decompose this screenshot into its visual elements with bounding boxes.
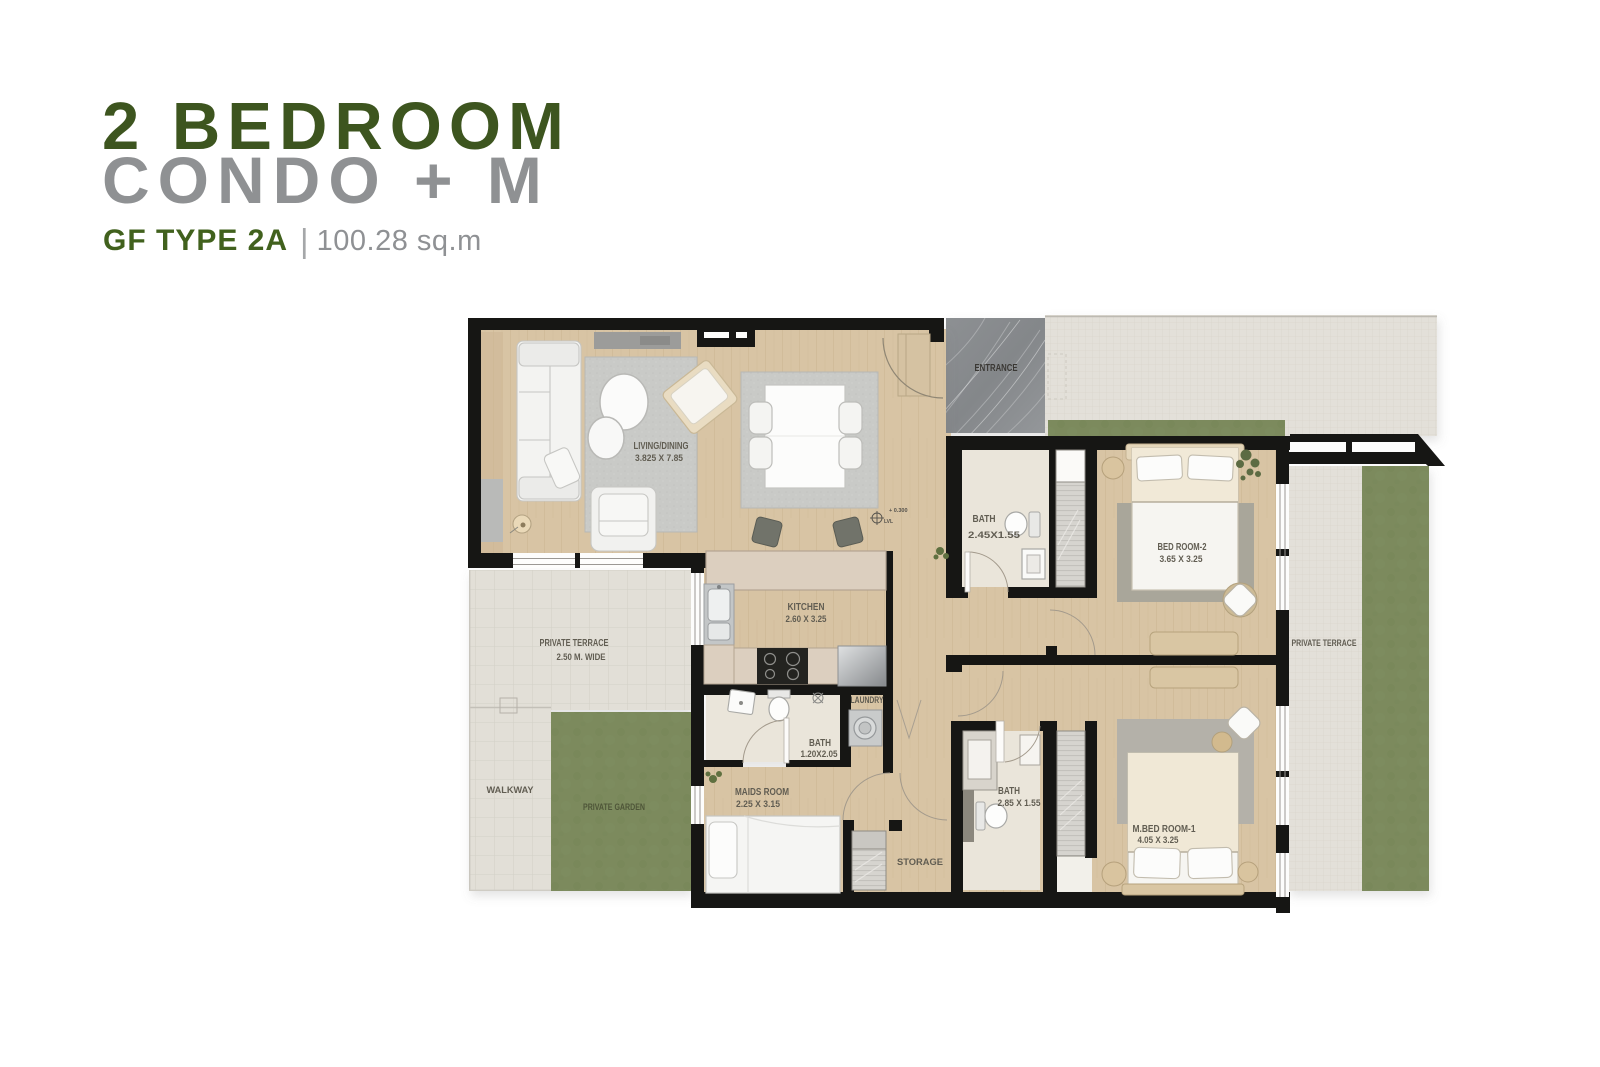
svg-text:WALKWAY: WALKWAY [487, 785, 535, 796]
svg-text:2.25 X 3.15: 2.25 X 3.15 [736, 799, 781, 810]
svg-text:3.825 X 7.85: 3.825 X 7.85 [635, 453, 684, 464]
svg-text:MAIDS ROOM: MAIDS ROOM [735, 787, 789, 798]
svg-text:2.60 X 3.25: 2.60 X 3.25 [786, 614, 828, 625]
svg-text:BATH: BATH [998, 786, 1020, 797]
svg-text:LIVING/DINING: LIVING/DINING [634, 441, 689, 452]
svg-text:PRIVATE TERRACE: PRIVATE TERRACE [1292, 638, 1357, 649]
svg-text:STORAGE: STORAGE [897, 857, 943, 868]
svg-text:BATH: BATH [809, 738, 831, 749]
svg-text:ENTRANCE: ENTRANCE [975, 363, 1018, 374]
svg-text:4.05 X 3.25: 4.05 X 3.25 [1138, 835, 1180, 846]
svg-text:2.85 X 1.55: 2.85 X 1.55 [998, 798, 1042, 809]
svg-text:2.45X1.55: 2.45X1.55 [968, 530, 1021, 541]
svg-text:BED ROOM-2: BED ROOM-2 [1158, 542, 1207, 553]
svg-text:+ 0.300: + 0.300 [889, 508, 908, 514]
svg-text:2.50 M. WIDE: 2.50 M. WIDE [557, 652, 606, 663]
svg-text:LAUNDRY: LAUNDRY [851, 695, 884, 705]
svg-text:PRIVATE TERRACE: PRIVATE TERRACE [540, 638, 609, 649]
svg-text:BATH: BATH [973, 514, 996, 525]
svg-text:PRIVATE GARDEN: PRIVATE GARDEN [583, 802, 645, 813]
svg-text:M.BED ROOM-1: M.BED ROOM-1 [1133, 824, 1196, 835]
svg-text:1.20X2.05: 1.20X2.05 [801, 749, 839, 760]
svg-text:KITCHEN: KITCHEN [788, 602, 825, 613]
svg-text:LVL: LVL [884, 519, 893, 525]
svg-text:3.65 X 3.25: 3.65 X 3.25 [1160, 554, 1204, 565]
